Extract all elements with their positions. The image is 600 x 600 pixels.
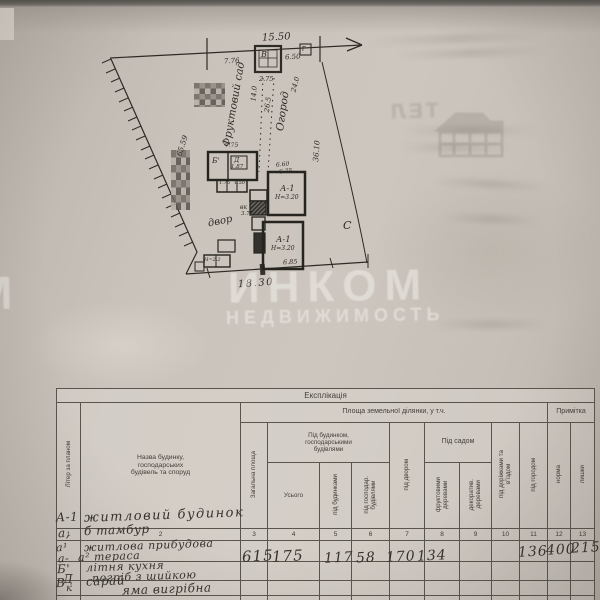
hw-value-total-area: 615 [242, 548, 274, 565]
hw-row-name: сарай [86, 574, 125, 587]
th-under-yard: під двором [390, 423, 425, 529]
hw-row-letter: А-1 [56, 511, 79, 524]
dim-house-2: 6.75 [279, 168, 293, 175]
th-under-vegetable: під городом [520, 423, 548, 529]
th-note-group: Примітка [548, 403, 595, 423]
dim-kitchen-top: 7.75 [225, 143, 239, 150]
col-number: 5 [320, 529, 352, 541]
th-under-paths: під доріжками та в'їздом [492, 423, 520, 529]
th-fruit-trees-text: фруктовими деревами [435, 477, 449, 512]
shed-height: Н=2.2 [204, 258, 221, 263]
dim-side-right: 36.10 [312, 130, 322, 162]
dim-outbuilding: 2.75 [259, 76, 273, 83]
th-norm-text: норма [555, 465, 562, 483]
th-surplus-text: лишки [579, 465, 586, 483]
col-number: 9 [460, 529, 492, 541]
col-number: 8 [425, 529, 460, 541]
col-number: 10 [492, 529, 520, 541]
hw-value-total: 175 [272, 548, 304, 565]
th-decorative-trees: декоратив. деревами [460, 463, 492, 529]
th-fruit-trees: фруктовими деревами [425, 463, 460, 529]
th-area-group: Площа земельної ділянки, у т.ч. [241, 403, 548, 423]
col-number: 12 [548, 529, 571, 541]
table-title: Експлікація [57, 389, 595, 403]
hw-value-surplus: 215 [571, 540, 600, 556]
house-lower-label: А-1 [276, 236, 291, 245]
th-total-area-text: Загальна площа [250, 451, 257, 498]
hw-value-under-vegetable: 136 [518, 544, 548, 560]
bleed-smudge [430, 320, 550, 329]
th-under-vegetable-text: під городом [530, 458, 537, 492]
house-lower-height: Н=3.20 [271, 246, 295, 252]
th-under-house: під будинками [320, 463, 352, 529]
th-norm: норма [548, 423, 571, 529]
dim-small-1: 1.75 [219, 181, 230, 186]
th-surplus: лишки [571, 423, 595, 529]
outbuilding-label: В [261, 51, 267, 59]
hw-value-fruit-trees: 134 [417, 548, 447, 564]
dim-segment-right: 6.50 [285, 54, 301, 62]
col-number: 4 [268, 529, 320, 541]
dim-shed: 3.77 [241, 212, 253, 218]
col-number: 11 [520, 529, 548, 541]
col-number: 6 [352, 529, 390, 541]
col-number: 7 [390, 529, 425, 541]
corner-shadow [0, 560, 70, 600]
dim-kitchen-inner: 1.87 [231, 165, 243, 171]
th-letter-text: Літер за планом [65, 441, 72, 487]
redaction-mosaic [194, 83, 225, 107]
bleed-house-stamp [432, 108, 508, 160]
north-mark: С [343, 220, 351, 231]
th-under-paths-text: під доріжками та в'їздом [498, 450, 512, 498]
hw-value-under-yard: 170 [386, 549, 416, 565]
th-under-outbuildings-text: під господар. будівлями [363, 476, 377, 514]
col-number: 3 [241, 529, 268, 541]
hw-value-under-outbuildings: 58 [356, 550, 377, 565]
building-summer-kitchen-label: Б' [212, 157, 220, 165]
building-cellar-label: Д [234, 157, 239, 164]
hw-row-name: б тамбур [84, 523, 150, 537]
th-under-house-text: під будинками [332, 474, 339, 515]
dim-small-2: 1.50 [234, 181, 245, 186]
dim-top: 15.50 [262, 32, 291, 43]
hw-row-name2: яма вигрібна [122, 581, 212, 596]
th-decorative-trees-text: декоратив. деревами [468, 479, 482, 510]
scanned-document-page: 15.50 7.76 6.50 Г В 2.75 Фруктовий сад 1… [0, 0, 600, 600]
th-under-outbuildings: під господар. будівлями [352, 463, 390, 529]
th-garden-group: Під садом [425, 423, 492, 463]
th-total-area: Загальна площа [241, 423, 268, 529]
corner-marker: Г [302, 46, 306, 53]
hw-value-under-house: 117 [324, 550, 354, 566]
house-upper-height: Н=3.20 [275, 195, 299, 201]
watermark-edge-letter: М [0, 266, 19, 321]
house-upper-label: А-1 [280, 185, 295, 194]
hw-row-letter: а, [58, 527, 70, 539]
redaction-mosaic [171, 150, 190, 210]
th-house-group: Під будинком, господарськими будівлями [268, 423, 390, 463]
watermark-subtitle: НЕДВИЖИМОСТЬ [226, 304, 445, 329]
th-total: Усього [268, 463, 320, 529]
th-under-yard-text: під двором [403, 459, 410, 490]
